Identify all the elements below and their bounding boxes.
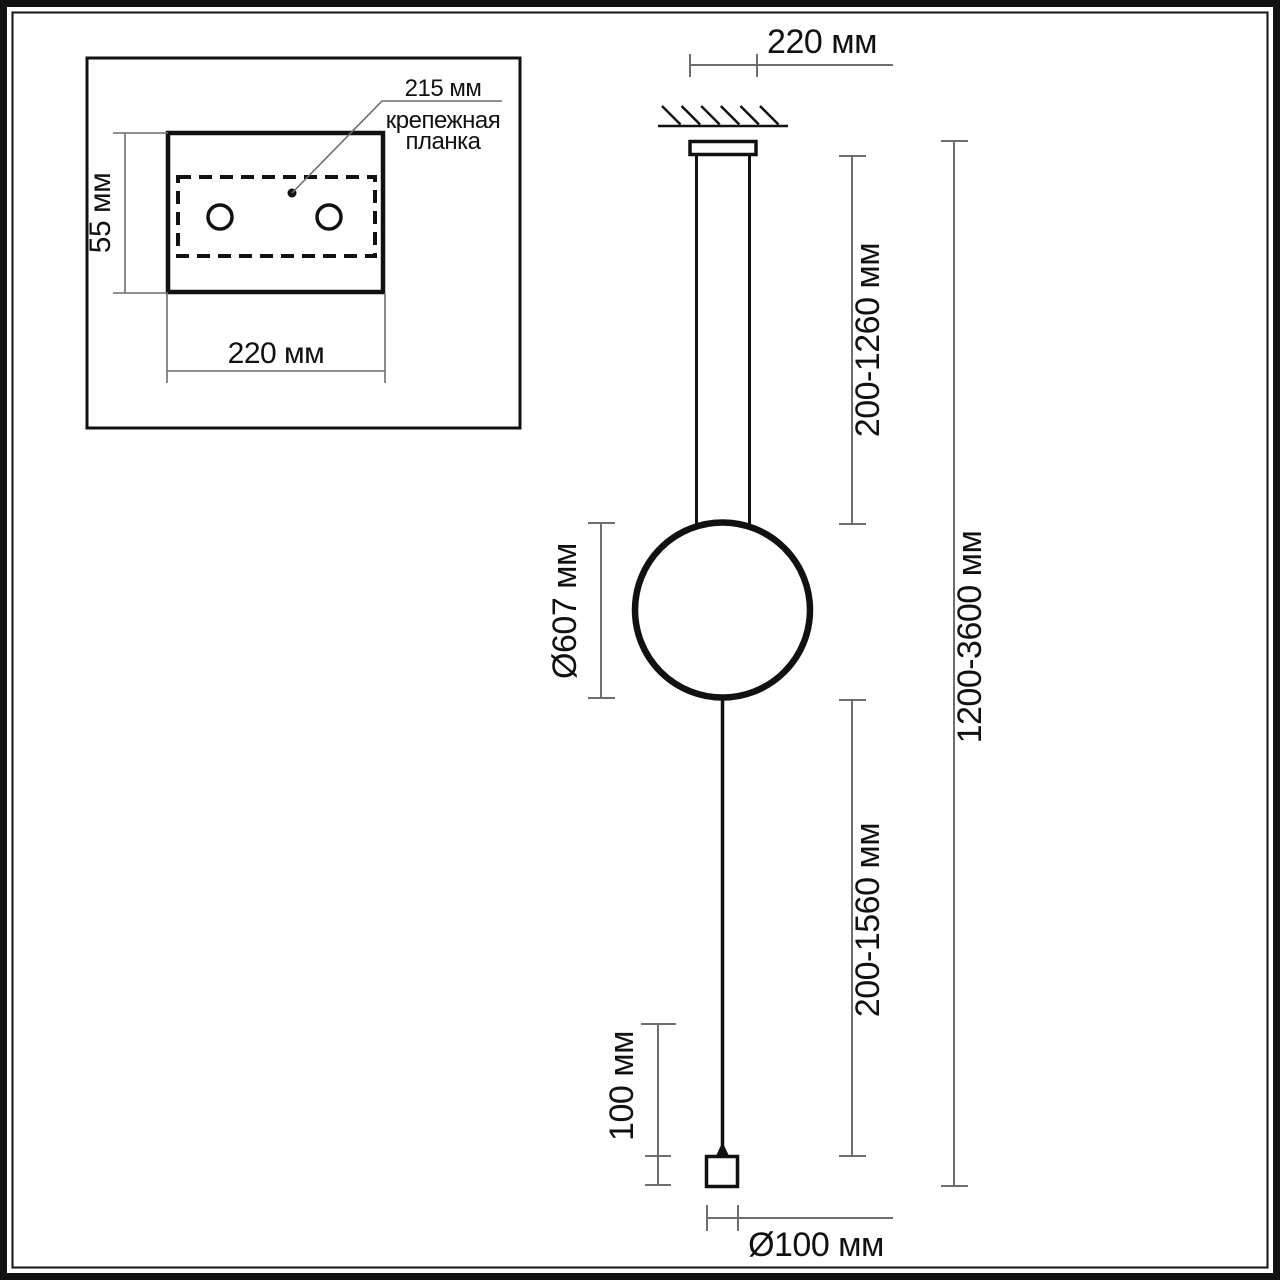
bar-length-label: 215 мм	[405, 75, 482, 102]
plate-height-label: 55 мм	[84, 173, 117, 253]
plate-width-label: 220 мм	[228, 337, 325, 370]
cable-length-label: 200-1560 мм	[849, 823, 887, 1017]
weight-diameter-label: Ø100 мм	[748, 1226, 884, 1264]
light-ring	[635, 523, 810, 698]
rod-length-label: 200-1260 мм	[849, 243, 887, 437]
ring-diameter-label: Ø607 мм	[546, 543, 584, 679]
canopy-width-label: 220 мм	[767, 23, 877, 61]
technical-drawing: 215 мм крепежная планка 55 мм 220 мм	[0, 0, 1280, 1280]
total-height-label: 1200-3600 мм	[951, 531, 989, 744]
bar-name-line2: планка	[406, 128, 482, 155]
ceiling-canopy	[690, 142, 756, 155]
mounting-plate-inset: 215 мм крепежная планка 55 мм 220 мм	[84, 58, 520, 428]
screw-hole-right	[317, 205, 341, 229]
drawing-page: 215 мм крепежная планка 55 мм 220 мм	[0, 0, 1280, 1280]
mounting-plate-outline	[168, 133, 383, 292]
screw-hole-left	[208, 205, 232, 229]
weight-height-label: 100 мм	[603, 1031, 641, 1141]
counterweight	[707, 1157, 738, 1187]
